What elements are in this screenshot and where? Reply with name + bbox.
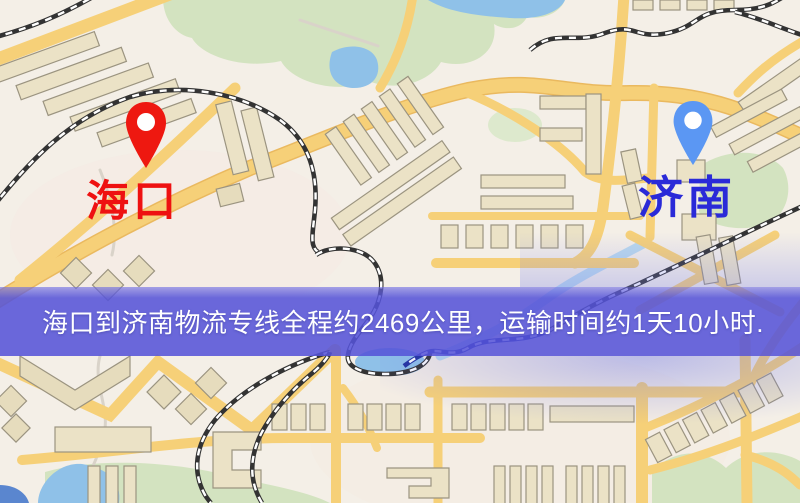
- route-banner: 海口到济南物流专线全程约2469公里，运输时间约1天10小时.: [0, 287, 800, 356]
- pond-a: [329, 46, 378, 88]
- origin-pin-icon: [124, 100, 168, 170]
- route-banner-text: 海口到济南物流专线全程约2469公里，运输时间约1天10小时.: [42, 303, 764, 340]
- building-long: [55, 427, 151, 452]
- destination-pin-icon: [671, 99, 715, 167]
- river-corner: [0, 485, 29, 503]
- buildings-mid-squares: [441, 225, 583, 248]
- map-base: [0, 0, 800, 503]
- building-chevron: [20, 356, 130, 410]
- origin-label: 海口: [86, 181, 180, 224]
- buildings-top-right-row: [633, 0, 734, 10]
- destination-label: 济南: [638, 175, 736, 220]
- map-canvas[interactable]: 海口 济南 海口到济南物流专线全程约2469公里，运输时间约1天10小时.: [0, 0, 800, 503]
